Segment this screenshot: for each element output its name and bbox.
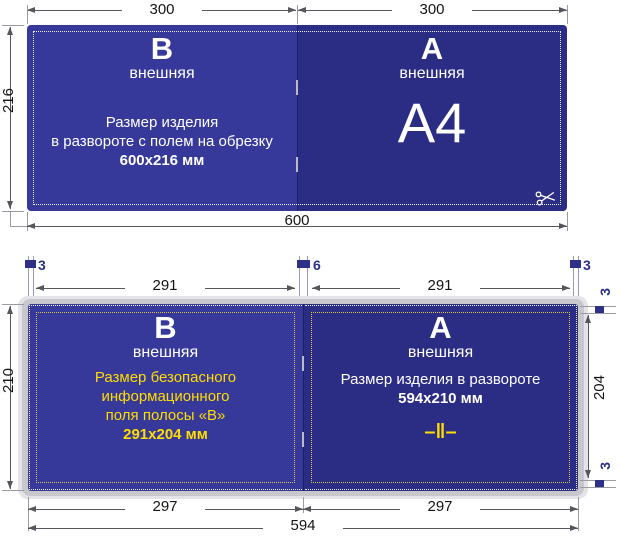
top-panel-a-letter: А [297,33,567,64]
extension-line [567,5,568,24]
bottom-panel-b-caption: Размер безопасного информационного поля … [28,368,303,444]
fold-tick [296,80,298,95]
extension-line [27,5,28,24]
top-spread: В внешняя Размер изделия в развороте с п… [27,25,567,211]
fold-mark-symbol: –‖– [303,422,578,442]
bleed-label-center: 6 [313,258,321,272]
top-panel-b-subtitle: внешняя [27,66,297,82]
dim-label-216: 216 [1,88,16,113]
extension-line [580,487,616,488]
bleed-square-right [570,260,581,268]
caption-line: в развороте с полем на обрезку [27,132,297,151]
caption-size: 600х216 мм [27,151,297,170]
dim-label-297-right: 297 [400,499,480,514]
caption-line: Размер изделия [27,113,297,132]
dim-label-300-right: 300 [392,2,472,17]
extension-line [297,5,298,24]
bottom-panel-b-subtitle: внешняя [28,345,303,361]
safe-caption-line: поля полосы «В» [28,406,303,425]
bottom-panel-b-letter: В [28,312,303,343]
dim-label-291-right: 291 [400,278,480,293]
extension-line [2,25,24,26]
dim-label-594: 594 [263,518,343,533]
scissors-icon [534,189,558,207]
extension-line [578,497,579,531]
extension-line [580,313,616,314]
bleed-label-right: 3 [583,258,591,272]
extension-line [2,490,24,491]
bottom-panel-a-letter: А [303,312,578,343]
bleed-square-bottom-right [595,480,604,487]
dim-label-297-left: 297 [125,499,205,514]
dim-line-210 [10,306,11,489]
bleed-square-center [297,260,310,268]
top-panel-a-subtitle: внешняя [297,66,567,82]
dim-line-216 [10,27,11,209]
dim-line-204 [588,315,589,478]
extension-line [567,212,568,231]
dim-label-600: 600 [257,213,337,228]
dim-label-300-left: 300 [122,2,202,17]
extension-line [10,211,11,227]
bleed-square-left [25,260,36,268]
bottom-panel-a-caption: Размер изделия в развороте 594х210 мм [303,370,578,408]
bottom-spread: В внешняя Размер безопасного информацион… [28,304,578,491]
bleed-label-left: 3 [38,258,46,272]
dim-label-204: 204 [592,375,607,400]
top-panel-a-format: A4 [297,95,567,151]
dim-label-210: 210 [1,368,16,393]
extension-line [10,226,27,227]
safe-caption-size: 291х204 мм [28,425,303,444]
caption-size: 594х210 мм [303,389,578,408]
extension-line [2,304,24,305]
top-panel-b-letter: В [27,33,297,64]
safe-caption-line: Размер безопасного [28,368,303,387]
bleed-label-top-right: 3 [598,288,612,296]
dim-label-291-left: 291 [125,278,205,293]
safe-caption-line: информационного [28,387,303,406]
bleed-label-bottom-right: 3 [598,462,612,470]
bleed-square-top-right [595,306,604,313]
extension-line [2,211,24,212]
caption-line: Размер изделия в развороте [303,370,578,389]
print-spec-diagram: 300 300 216 В внешняя Размер изделия в р… [0,0,620,538]
bottom-panel-a-subtitle: внешняя [303,345,578,361]
top-panel-b-caption: Размер изделия в развороте с полем на об… [27,113,297,170]
